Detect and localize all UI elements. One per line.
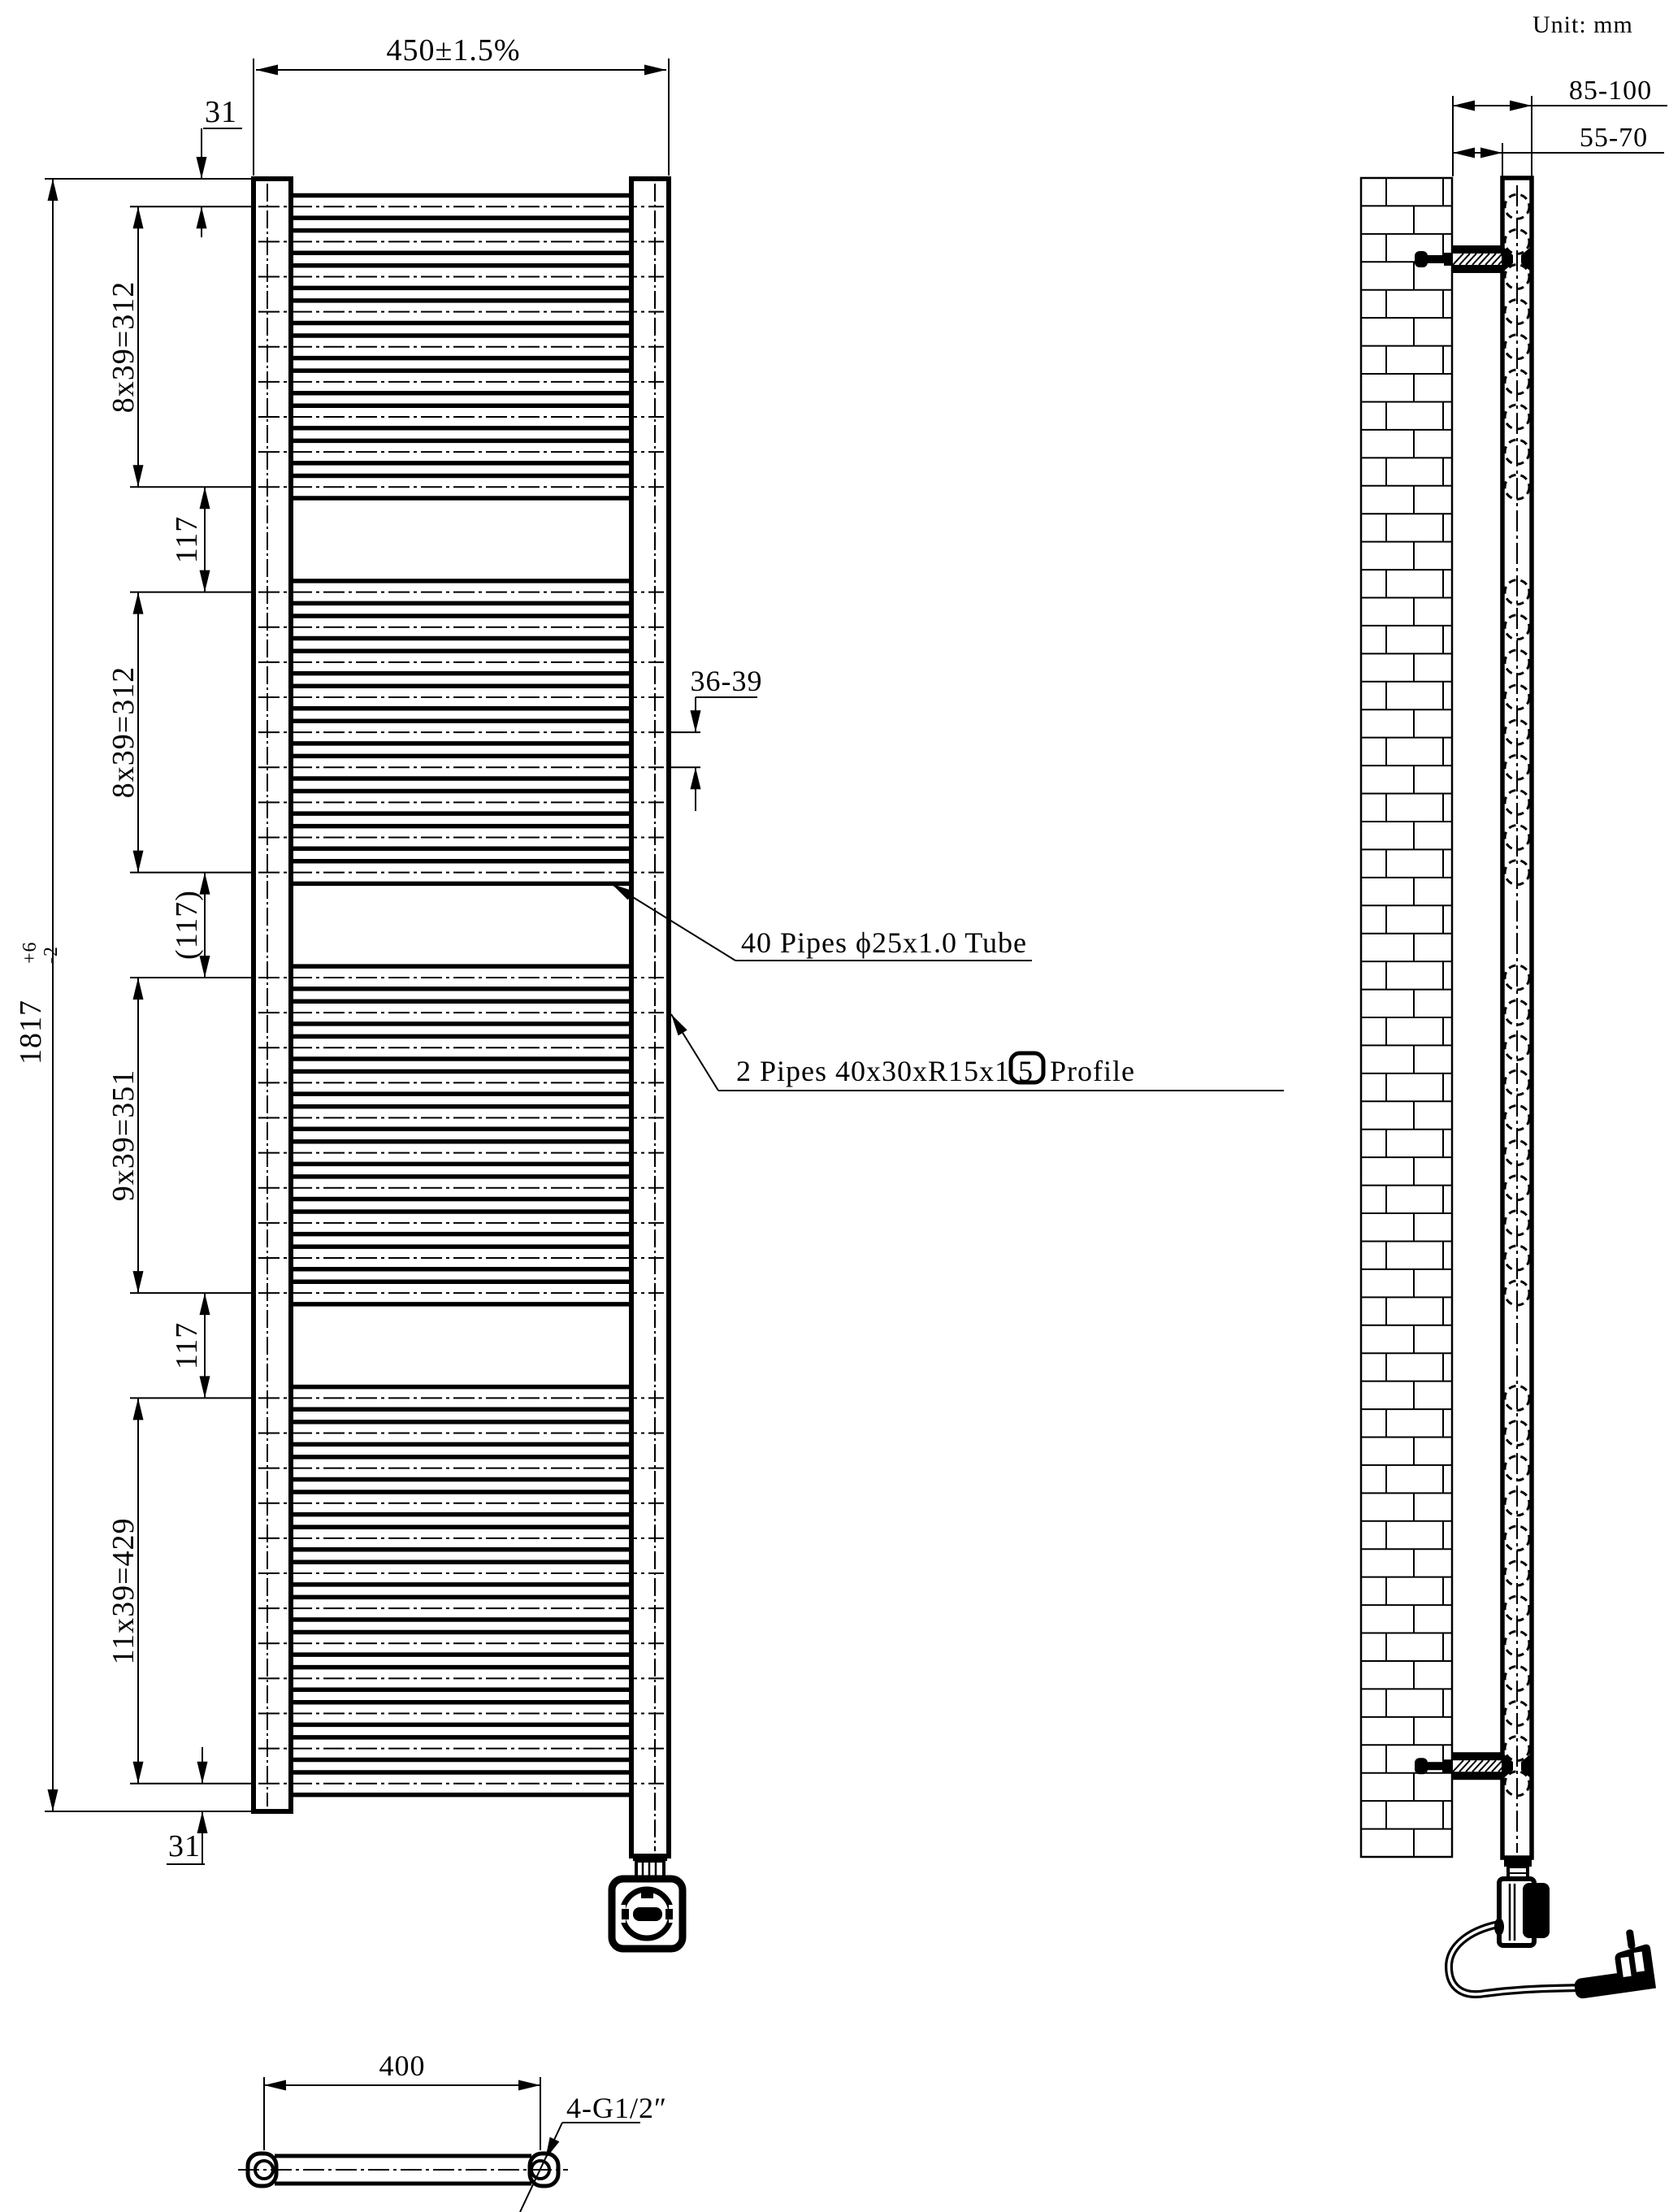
front-view — [254, 179, 683, 1949]
dimension-arrow — [133, 1398, 144, 1420]
group4-dim-label: 11x39=429 — [106, 1517, 141, 1664]
dimension-arrow — [133, 206, 144, 228]
drawing-sheet: Unit: mm 450±1.5% 31 31 8x39=312 117 8x3… — [0, 0, 1669, 2212]
depth-near-dim-label: 55-70 — [1580, 123, 1648, 153]
dimension-arrow — [1453, 148, 1475, 158]
dimension-arrow — [518, 2080, 540, 2091]
dimension-arrow — [197, 157, 207, 179]
bottom-view — [238, 2153, 568, 2186]
dimension-arrow — [133, 1271, 144, 1293]
heating-element-side — [1449, 1859, 1656, 1999]
gap3-dim-label: 117 — [170, 1322, 204, 1370]
group1-dim-label: 8x39=312 — [106, 281, 141, 413]
depth-total-dim-label: 85-100 — [1569, 76, 1652, 106]
height-tol-minus: -2 — [41, 946, 62, 964]
group2-dim-label: 8x39=312 — [106, 666, 141, 798]
dimension-arrow — [256, 65, 278, 76]
dimension-arrow — [200, 1376, 210, 1398]
wall-bracket — [1415, 1753, 1532, 1779]
power-plug — [1567, 1927, 1656, 1999]
right-tube — [631, 179, 669, 1856]
profile-note-suffix: Profile — [1050, 1055, 1135, 1087]
dimension-arrow — [133, 1762, 144, 1784]
dimension-arrow — [197, 206, 207, 228]
dimension-lines — [45, 59, 1667, 2212]
profile-note-prefix: 2 Pipes 40x30xR15x1.5 — [736, 1055, 1034, 1087]
dimension-arrow — [1453, 101, 1475, 111]
left-tube — [254, 179, 291, 1811]
dimension-arrow — [48, 179, 59, 201]
group3-dim-label: 9x39=351 — [106, 1069, 141, 1201]
dimension-arrow — [1480, 148, 1502, 158]
dimension-arrow — [200, 487, 210, 509]
hole-spacing-dim-label: 400 — [379, 2049, 426, 2082]
dimension-arrow — [264, 2080, 286, 2091]
brick-wall — [1361, 178, 1452, 1857]
bottom-offset-dim-label: 31 — [168, 1829, 201, 1863]
dimension-arrow — [691, 710, 701, 732]
pipe-gap-dim-label: 36-39 — [691, 665, 763, 697]
gap1-dim-label: 117 — [170, 516, 204, 564]
dimension-arrow — [48, 1789, 59, 1811]
dimension-arrow — [691, 767, 701, 789]
thread-dim-label: 4-G1/2″ — [566, 2092, 667, 2124]
tube-note-label: 40 Pipes ϕ25x1.0 Tube — [741, 926, 1027, 959]
gap2-dim-label: (117) — [170, 890, 204, 960]
front-rungs — [258, 195, 664, 1794]
dimension-arrow — [133, 465, 144, 487]
dimension-arrow — [197, 1762, 208, 1784]
top-offset-dim-label: 31 — [205, 95, 237, 129]
dimension-arrow — [1510, 101, 1532, 111]
dimension-arrow — [644, 65, 666, 76]
heating-element-front — [612, 1854, 683, 1949]
dimension-arrow — [133, 592, 144, 614]
side-view — [1361, 178, 1656, 1999]
height-tol-plus: +6 — [20, 941, 41, 964]
height-dim-value: 1817 — [14, 1000, 48, 1065]
dimension-arrow — [133, 978, 144, 1000]
wall-bracket — [1415, 246, 1532, 272]
technical-drawing: Unit: mm 450±1.5% 31 31 8x39=312 117 8x3… — [0, 0, 1669, 2212]
unit-label: Unit: mm — [1532, 11, 1633, 38]
dimension-arrow — [133, 851, 144, 873]
height-dim-label: 1817 +6 -2 — [14, 941, 62, 1065]
dimension-arrow — [200, 570, 210, 592]
dimension-arrow — [200, 1293, 210, 1315]
width-dim-label: 450±1.5% — [386, 33, 520, 67]
